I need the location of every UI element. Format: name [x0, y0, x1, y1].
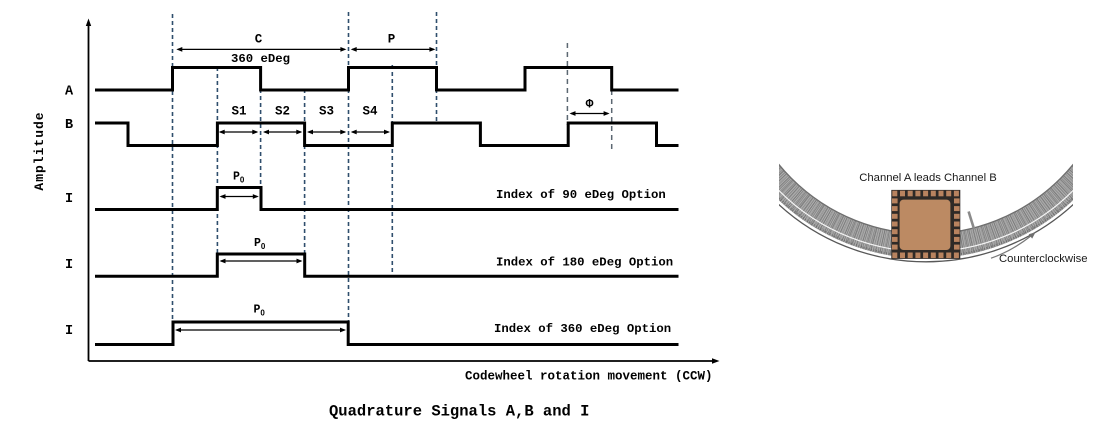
svg-text:Index of 180 eDeg Option: Index of 180 eDeg Option — [496, 256, 673, 270]
svg-text:Quadrature Signals A,B and I: Quadrature Signals A,B and I — [329, 403, 589, 421]
svg-text:Index of 90 eDeg Option: Index of 90 eDeg Option — [496, 188, 666, 202]
svg-text:P0: P0 — [254, 304, 266, 318]
svg-text:S1: S1 — [231, 104, 246, 118]
svg-text:C: C — [255, 32, 263, 46]
svg-text:I: I — [65, 258, 73, 273]
svg-text:P0: P0 — [233, 171, 245, 185]
svg-text:I: I — [65, 324, 73, 339]
svg-text:B: B — [65, 118, 73, 133]
svg-text:P0: P0 — [254, 237, 266, 251]
svg-text:Channel A leads Channel B: Channel A leads Channel B — [859, 172, 997, 184]
svg-text:Codewheel rotation movement (C: Codewheel rotation movement (CCW) — [465, 370, 713, 384]
svg-text:S3: S3 — [319, 104, 334, 118]
svg-text:Amplitude: Amplitude — [32, 111, 47, 190]
svg-text:360 eDeg: 360 eDeg — [231, 52, 290, 66]
svg-text:I: I — [65, 192, 73, 207]
svg-text:S4: S4 — [362, 104, 378, 118]
svg-text:Counterclockwise: Counterclockwise — [999, 253, 1088, 265]
svg-text:S2: S2 — [275, 104, 290, 118]
svg-text:P: P — [388, 32, 396, 46]
svg-text:Index of 360 eDeg Option: Index of 360 eDeg Option — [494, 322, 671, 336]
svg-text:Φ: Φ — [586, 97, 594, 112]
svg-text:A: A — [65, 85, 74, 100]
